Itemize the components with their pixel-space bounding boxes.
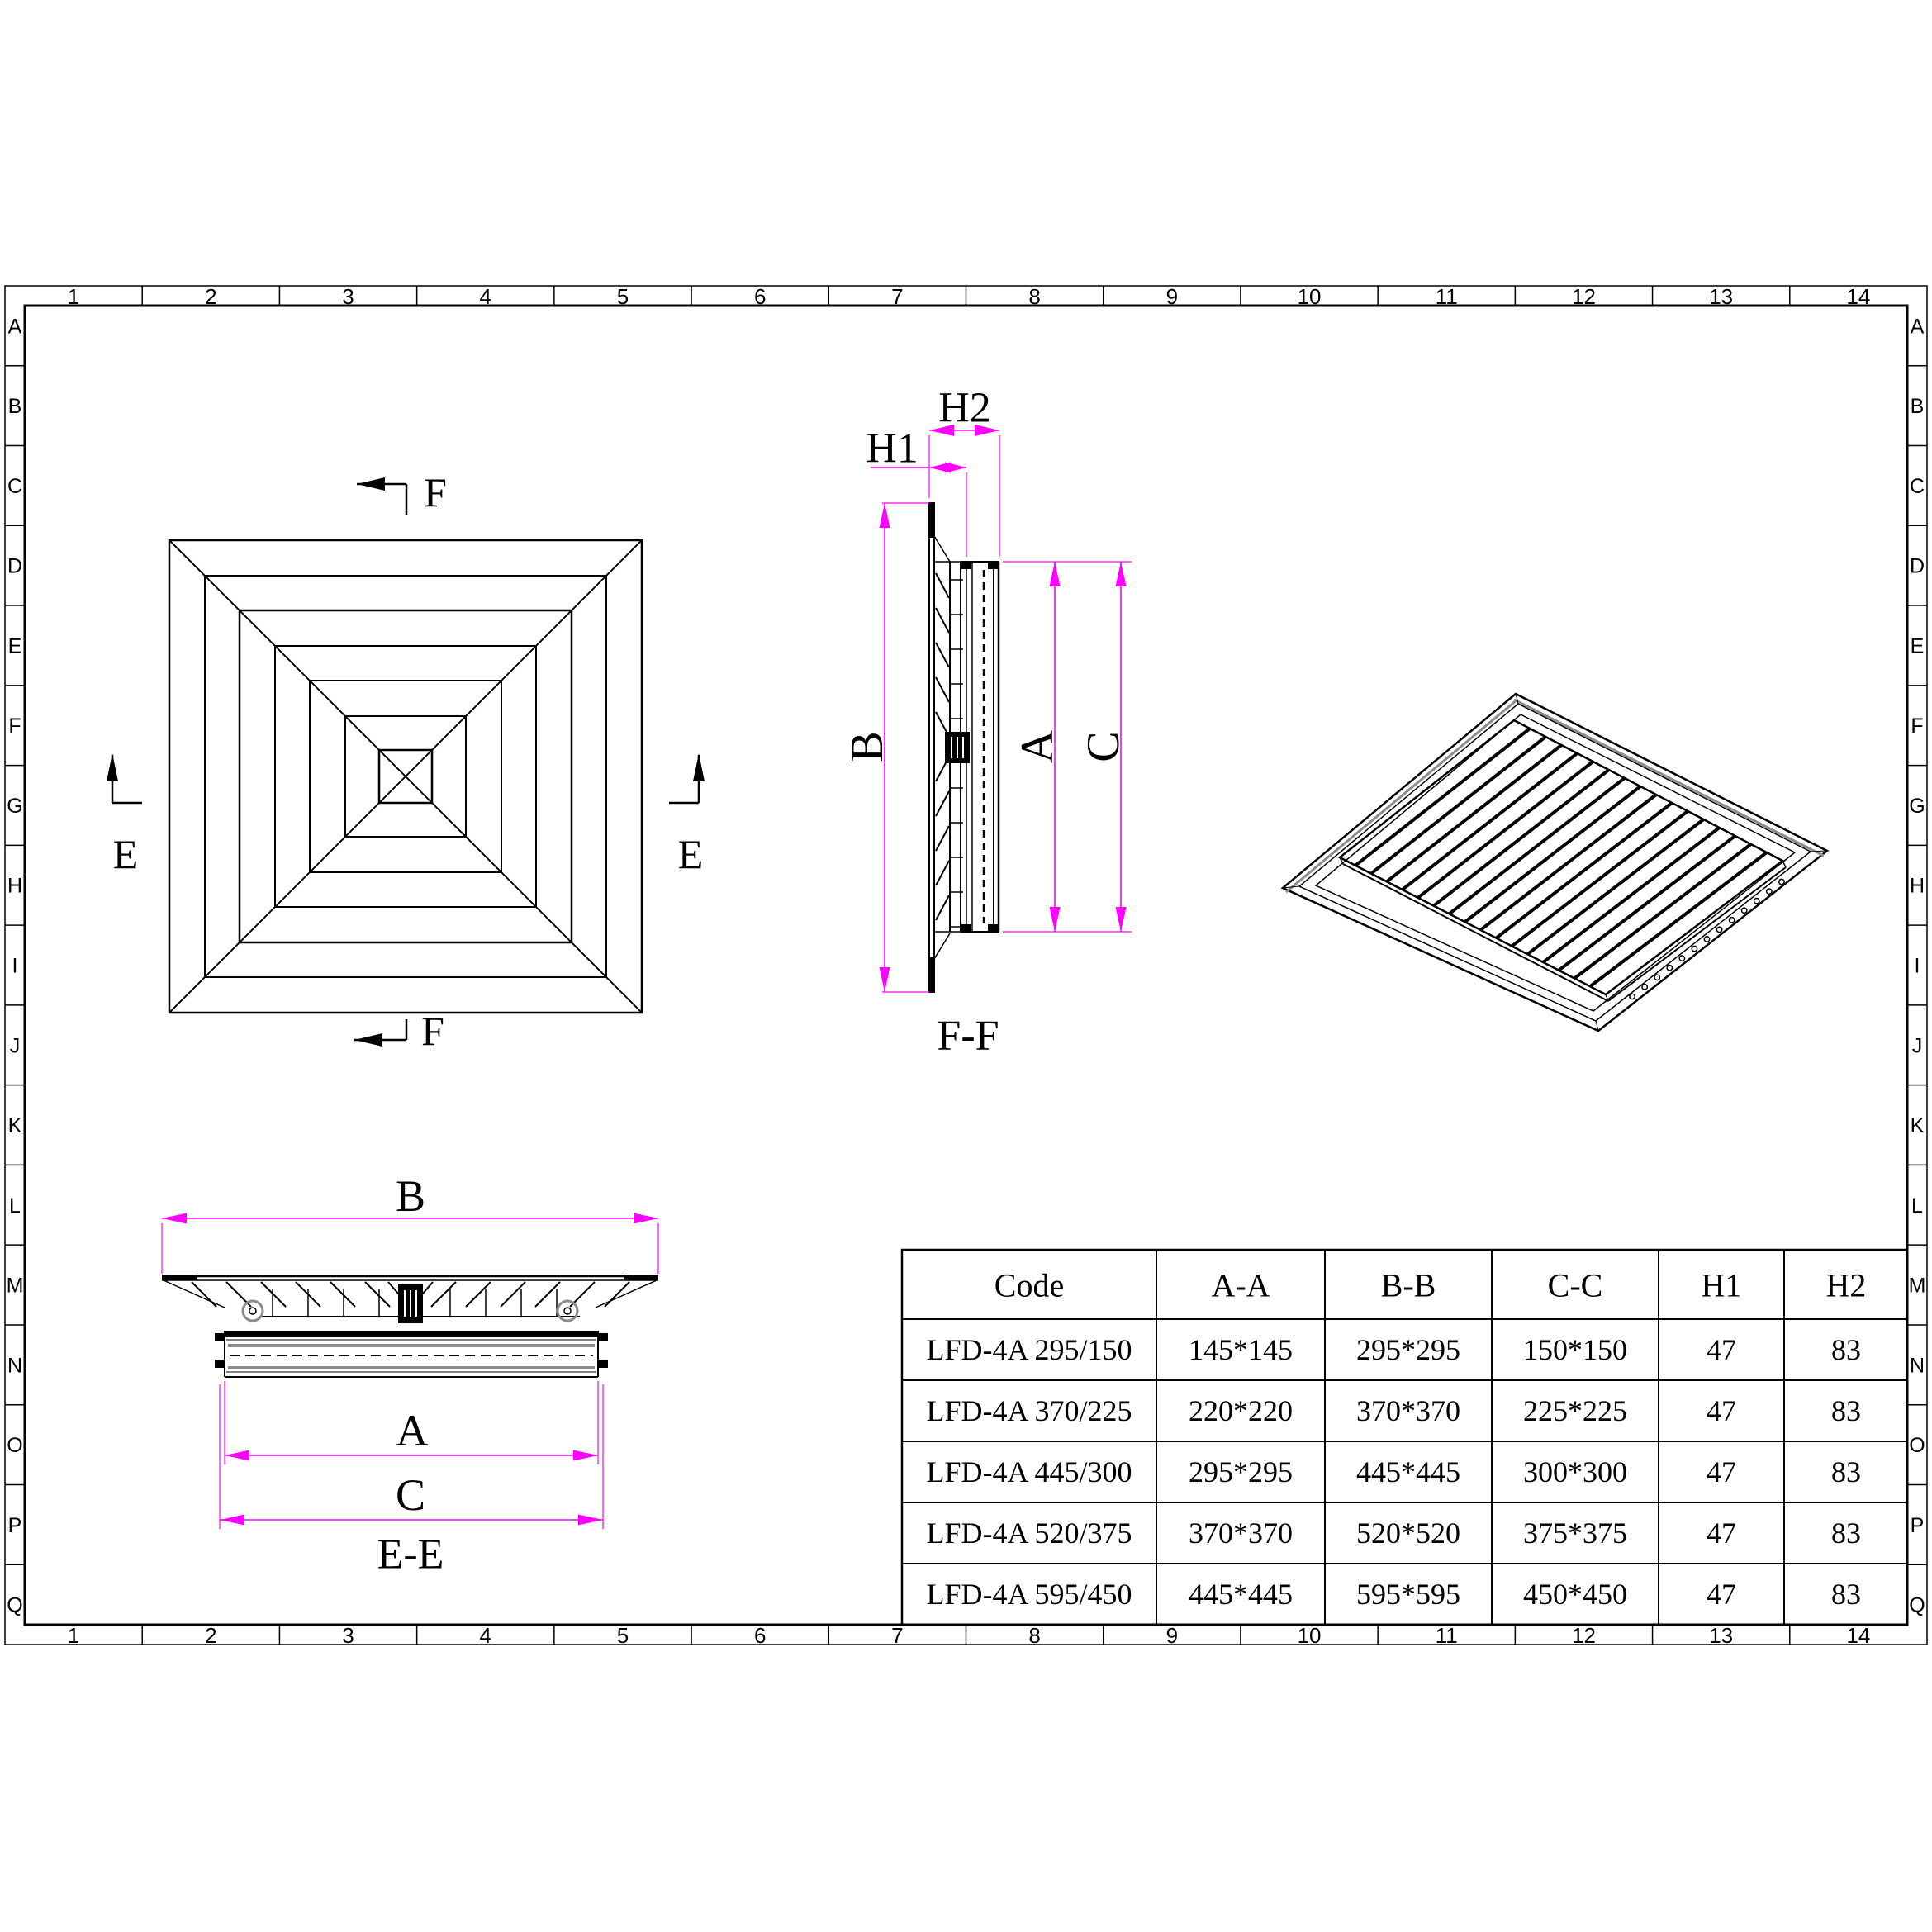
rivet-icon: [1779, 879, 1784, 884]
table-cell: LFD-4A 595/450: [926, 1578, 1132, 1611]
grid-column-ref: 4: [480, 1623, 491, 1648]
table-cell: 220*220: [1189, 1394, 1293, 1427]
grid-column-ref: 10: [1298, 284, 1322, 309]
table-header: H1: [1702, 1267, 1742, 1304]
dim-label-h2: H2: [938, 385, 991, 432]
rivet-icon: [1654, 975, 1659, 980]
grid-row-ref: P: [1911, 1514, 1925, 1537]
grid-column-ref: 3: [342, 1623, 354, 1648]
table-header: B-B: [1381, 1267, 1436, 1304]
grid-row-ref: K: [1911, 1114, 1925, 1137]
grid-column-ref: 11: [1436, 284, 1458, 309]
table-cell: 225*225: [1523, 1394, 1627, 1427]
grid-column-ref: 7: [891, 1623, 903, 1648]
grid-column-ref: 13: [1709, 1623, 1733, 1648]
grid-column-ref: 6: [754, 1623, 766, 1648]
table-row: LFD-4A 520/375 370*370 520*520 375*375 4…: [926, 1517, 1861, 1550]
table-cell: 295*295: [1356, 1333, 1460, 1366]
grid-column-ref: 11: [1436, 1623, 1458, 1648]
table-cell: 300*300: [1523, 1455, 1627, 1488]
grid-row-ref: E: [1911, 634, 1925, 657]
grid-column-ref: 8: [1028, 1623, 1040, 1648]
table-border: [902, 1250, 1907, 1625]
table-cell: 83: [1831, 1333, 1861, 1366]
dim-label-a: A: [1012, 729, 1063, 763]
grid-column-ref: 1: [68, 284, 79, 309]
section-arrow-icon: [357, 477, 385, 491]
table-cell: 595*595: [1356, 1578, 1460, 1611]
rivet-icon: [1667, 966, 1672, 971]
rivet-icon: [1754, 899, 1759, 904]
table-cell: 83: [1831, 1578, 1861, 1611]
iso-frame-step-2: [1316, 714, 1795, 1011]
grid-row-ref: G: [7, 795, 22, 818]
dim-label-b: B: [396, 1171, 425, 1221]
rivet-icon: [1679, 956, 1684, 961]
ee-section-title: E-E: [377, 1531, 444, 1578]
grid-row-ref: D: [1910, 555, 1925, 578]
grid-column-ref: 7: [891, 284, 903, 309]
table-header: C-C: [1548, 1267, 1603, 1304]
table-cell: 47: [1707, 1455, 1736, 1488]
grid-row-labels-left: ABCDEFGHIJKLMNOPQ: [7, 315, 24, 1616]
grid-row-ref: I: [12, 955, 18, 978]
dim-label-c: C: [396, 1470, 425, 1520]
ff-dimensions: H2 H1 B A C: [842, 385, 1132, 993]
section-arrow-icon: [693, 753, 705, 781]
grid-column-ref: 2: [205, 1623, 216, 1648]
grid-column-ref: 5: [617, 284, 629, 309]
table-row: LFD-4A 445/300 295*295 445*445 300*300 4…: [926, 1455, 1861, 1488]
table-cell: LFD-4A 370/225: [926, 1394, 1132, 1427]
iso-louver-face: [1340, 720, 1782, 994]
table-cell: LFD-4A 295/150: [926, 1333, 1132, 1366]
table-cell: LFD-4A 520/375: [926, 1517, 1132, 1550]
rivet-icon: [1630, 994, 1635, 999]
grid-row-ref: O: [1909, 1434, 1925, 1457]
grid-row-ref: Q: [7, 1594, 22, 1617]
grid-column-ref: 14: [1846, 1623, 1870, 1648]
ff-section-title: F-F: [937, 1013, 999, 1060]
dim-label-h1: H1: [866, 425, 919, 472]
table-cell: 295*295: [1189, 1455, 1293, 1488]
spec-table: Code A-A B-B C-C H1 H2 LFD-4A 295/150 14…: [902, 1250, 1907, 1625]
grid-row-ref: L: [9, 1194, 21, 1218]
table-cell: 445*445: [1356, 1455, 1460, 1488]
table-cell: 47: [1707, 1394, 1736, 1427]
section-marker-e-left: E: [107, 753, 142, 877]
table-cell: 83: [1831, 1455, 1861, 1488]
table-header: A-A: [1211, 1267, 1270, 1304]
grid-row-ref: H: [7, 875, 22, 898]
flange-plate: [929, 503, 934, 992]
grid-row-ref: N: [1910, 1354, 1925, 1377]
table-cell: 445*445: [1189, 1578, 1293, 1611]
table-cell: 145*145: [1189, 1333, 1293, 1366]
grid-row-ref: G: [1909, 795, 1925, 818]
grid-row-ref: E: [8, 634, 22, 657]
grid-column-ref: 2: [205, 284, 216, 309]
grid-row-ref: K: [8, 1114, 22, 1137]
spring-clip-icon: [243, 1301, 263, 1321]
grid-column-ref: 3: [342, 284, 354, 309]
grid-row-ref: I: [1915, 955, 1920, 978]
grid-row-ref: C: [1910, 475, 1925, 498]
table-cell: 520*520: [1356, 1517, 1460, 1550]
section-marker-f-top: F: [357, 469, 447, 515]
spring-clip-icon: [558, 1301, 577, 1321]
table-header: H2: [1826, 1267, 1867, 1304]
table-header: Code: [994, 1267, 1064, 1304]
grid-row-ref: J: [10, 1034, 21, 1057]
grid-column-ref: 4: [480, 284, 491, 309]
dim-label-a: A: [396, 1406, 429, 1455]
grid-column-ref: 8: [1028, 284, 1040, 309]
section-label-f: F: [421, 1008, 444, 1054]
table-header-row: Code A-A B-B C-C H1 H2: [994, 1267, 1867, 1304]
grid-row-ref: J: [1912, 1034, 1923, 1057]
rivet-icon: [1767, 889, 1772, 894]
rivet-icon: [1716, 927, 1721, 932]
dim-label-c: C: [1078, 731, 1129, 762]
section-marker-f-bottom: F: [354, 1008, 444, 1054]
rivet-icon: [1729, 918, 1734, 923]
grid-column-ref: 5: [617, 1623, 629, 1648]
table-cell: 83: [1831, 1394, 1861, 1427]
grid-row-ref: M: [7, 1275, 24, 1298]
grid-row-ref: Q: [1909, 1594, 1925, 1617]
table-row: LFD-4A 595/450 445*445 595*595 450*450 4…: [926, 1578, 1861, 1611]
plan-view: F F E E: [107, 469, 705, 1054]
grid-row-ref: M: [1909, 1275, 1926, 1298]
section-arrow-icon: [107, 753, 118, 781]
table-gridlines: [902, 1250, 1907, 1625]
section-label-f: F: [424, 469, 447, 515]
grid-column-ref: 13: [1709, 284, 1733, 309]
grid-row-ref: A: [1911, 315, 1925, 338]
grid-row-ref: C: [7, 475, 22, 498]
grid-column-ref: 12: [1572, 284, 1596, 309]
grid-row-ref: D: [7, 555, 22, 578]
grid-row-ref: B: [1911, 395, 1925, 418]
ff-section-view: H2 H1 B A C F: [842, 385, 1132, 1060]
dim-label-b: B: [842, 731, 893, 762]
rivet-icon: [1642, 985, 1647, 990]
table-cell: 450*450: [1523, 1578, 1627, 1611]
grid-column-ref: 1: [68, 1623, 79, 1648]
rivet-icon: [1704, 937, 1709, 942]
iso-view: [1283, 694, 1827, 1031]
section-marker-e-right: E: [669, 753, 705, 877]
table-cell: 47: [1707, 1333, 1736, 1366]
grid-column-ref: 6: [754, 284, 766, 309]
table-cell: LFD-4A 445/300: [926, 1455, 1132, 1488]
grid-column-ref: 10: [1298, 1623, 1322, 1648]
table-row: LFD-4A 370/225 220*220 370*370 225*225 4…: [926, 1394, 1861, 1427]
grid-row-labels-right: ABCDEFGHIJKLMNOPQ: [1909, 315, 1926, 1616]
table-row: LFD-4A 295/150 145*145 295*295 150*150 4…: [926, 1333, 1861, 1366]
table-cell: 83: [1831, 1517, 1861, 1550]
grid-row-ref: F: [1911, 714, 1923, 738]
section-label-e: E: [678, 831, 704, 877]
iso-outer-frame: [1283, 694, 1827, 1031]
rivet-icon: [1742, 908, 1747, 913]
grid-row-ref: P: [8, 1514, 22, 1537]
collar-band: [225, 1331, 598, 1337]
ee-section-view: B: [162, 1171, 658, 1578]
section-label-e: E: [113, 831, 139, 877]
grid-row-ref: H: [1910, 875, 1925, 898]
table-cell: 47: [1707, 1578, 1736, 1611]
section-arrow-icon: [354, 1033, 382, 1047]
table-cell: 375*375: [1523, 1517, 1627, 1550]
table-cell: 370*370: [1356, 1394, 1460, 1427]
grid-column-ref: 14: [1846, 284, 1870, 309]
grid-row-ref: N: [7, 1354, 22, 1377]
grid-row-ref: L: [1911, 1194, 1923, 1218]
grid-row-ref: F: [8, 714, 21, 738]
grid-row-ref: A: [8, 315, 22, 338]
drawing-sheet: 1234567891011121314 1234567891011121314 …: [0, 0, 1932, 1932]
table-cell: 47: [1707, 1517, 1736, 1550]
table-cell: 150*150: [1523, 1333, 1627, 1366]
grid-column-ref: 9: [1166, 1623, 1178, 1648]
rivet-icon: [1692, 946, 1697, 951]
table-cell: 370*370: [1189, 1517, 1293, 1550]
grid-row-ref: B: [8, 395, 22, 418]
grid-row-ref: O: [7, 1434, 22, 1457]
grid-column-ref: 12: [1572, 1623, 1596, 1648]
grid-column-ref: 9: [1166, 284, 1178, 309]
